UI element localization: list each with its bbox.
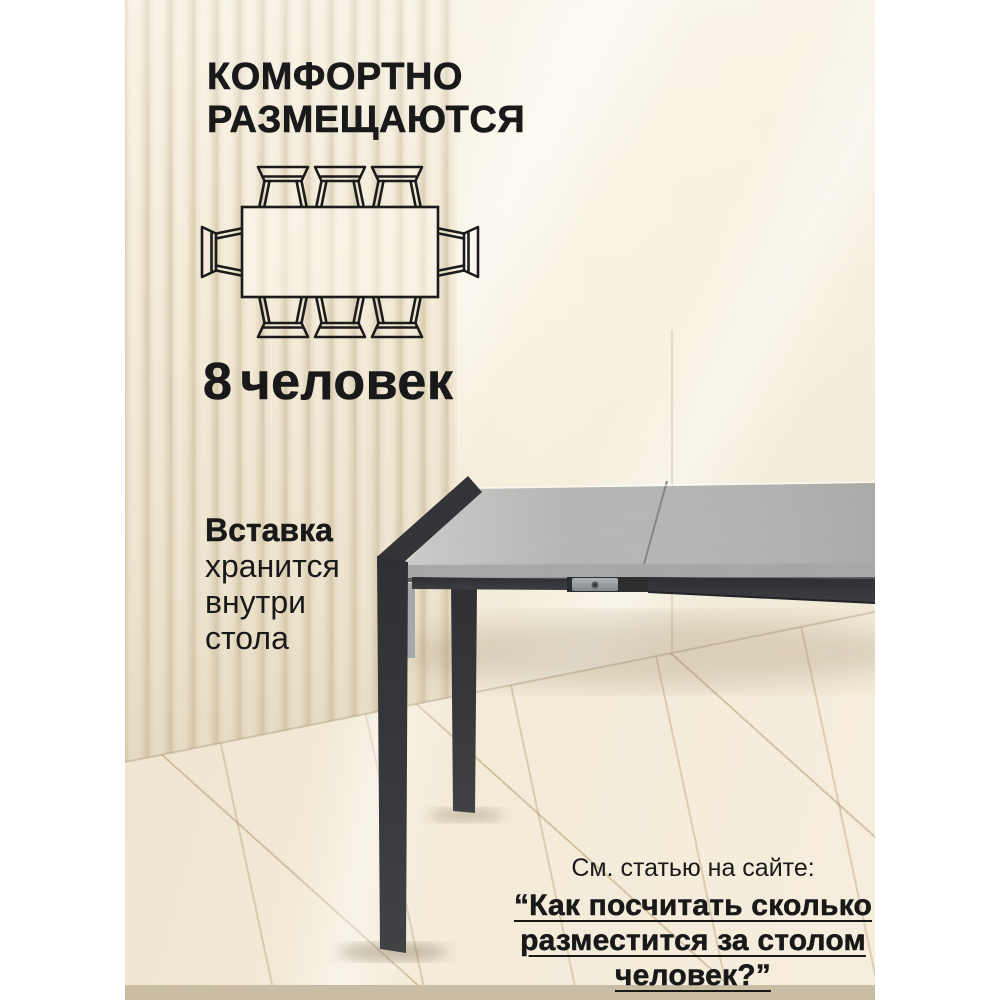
footer-intro: См. статью на сайте: [507,853,879,883]
capacity-label: 8человек [203,352,453,412]
article-link[interactable]: “Как посчитать сколько разместится за ст… [507,890,879,991]
insert-note-line3: внутри [205,584,340,620]
chair-icon [202,227,241,277]
headline-line1: КОМФОРТНО [207,56,525,99]
room-photo [125,0,875,1000]
chair-icon [372,167,422,206]
table-top-view-icon [242,207,438,297]
dining-table-photo [125,0,875,1000]
chair-icon [258,167,308,206]
headline: КОМФОРТНО РАЗМЕЩАЮТСЯ [207,56,525,142]
left-padding-strip [0,0,125,1000]
article-title-line3[interactable]: человек?” [507,960,879,991]
product-infographic: КОМФОРТНО РАЗМЕЩАЮТСЯ 8человек Вста [0,0,1000,1000]
article-title-line1[interactable]: “Как посчитать сколько [507,890,879,921]
insert-note: Вставка хранится внутри стола [205,512,340,656]
footer-note: См. статью на сайте: “Как посчитать скол… [507,853,879,995]
chair-icon [258,298,308,337]
chair-icon [315,167,365,206]
right-padding-strip [875,0,1000,1000]
capacity-word: человек [240,353,453,411]
chair-icon [372,298,422,337]
capacity-number: 8 [203,353,232,411]
chair-icon [439,227,478,277]
insert-note-line1: Вставка [205,512,340,548]
rear-left-table-leg [451,584,477,813]
front-left-table-leg [377,556,408,953]
apron-right [648,577,875,603]
insert-note-line4: стола [205,620,340,656]
headline-line2: РАЗМЕЩАЮТСЯ [207,99,525,142]
seating-diagram [185,155,485,355]
bracket-screw-center [594,584,597,587]
chair-icon [315,298,365,337]
apron-left [412,577,567,590]
article-title-line2[interactable]: разместится за столом [507,925,879,956]
insert-note-line2: хранится [205,548,340,584]
